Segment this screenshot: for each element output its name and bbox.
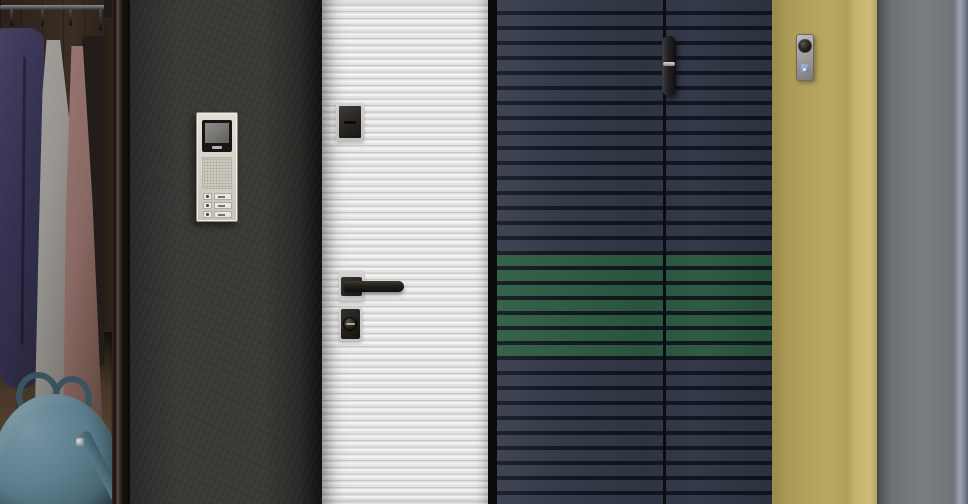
green-stripe-band [497,255,772,356]
intercom-key-button [203,211,212,218]
intercom-key-label [214,211,232,218]
intercom-speaker-grille [202,157,232,189]
hanger-hook [41,9,44,26]
yellow-wall [772,0,877,504]
intercom-screen [202,120,232,152]
smart-viewer [339,106,361,138]
hanger-hook [99,9,102,31]
wardrobe [0,0,130,504]
doorbell-button [801,64,809,73]
intercom-screen-display [205,123,229,143]
bag-clasp [76,438,84,446]
door-lever-handle [344,281,404,292]
closet-frame [112,0,130,504]
viewer-slot [344,121,356,124]
intercom-key-label [214,193,232,200]
bag-body [0,394,120,504]
intercom-key-button [203,193,212,200]
door-frame [488,0,497,504]
knob-slot [346,323,355,325]
intercom-screen-button [212,146,222,149]
hanger-hook [10,9,13,26]
intercom-key-label [214,202,232,209]
smart-viewer-plate [336,103,364,141]
doorbell-camera [796,34,814,81]
charcoal-wall [130,0,322,504]
hanger-hook [69,9,72,26]
entrance-scene [0,0,968,504]
white-door [322,0,488,504]
slatted-door [497,0,772,504]
leather-bag [0,372,120,504]
camera-lens-icon [798,39,812,53]
rod-bracket [104,0,112,17]
handle-accent-band [663,62,675,66]
intercom-keypad [203,193,232,218]
intercom-panel [196,112,238,222]
intercom-key-button [203,202,212,209]
vertical-pull-handle [662,36,676,96]
gray-pillar [877,0,968,504]
